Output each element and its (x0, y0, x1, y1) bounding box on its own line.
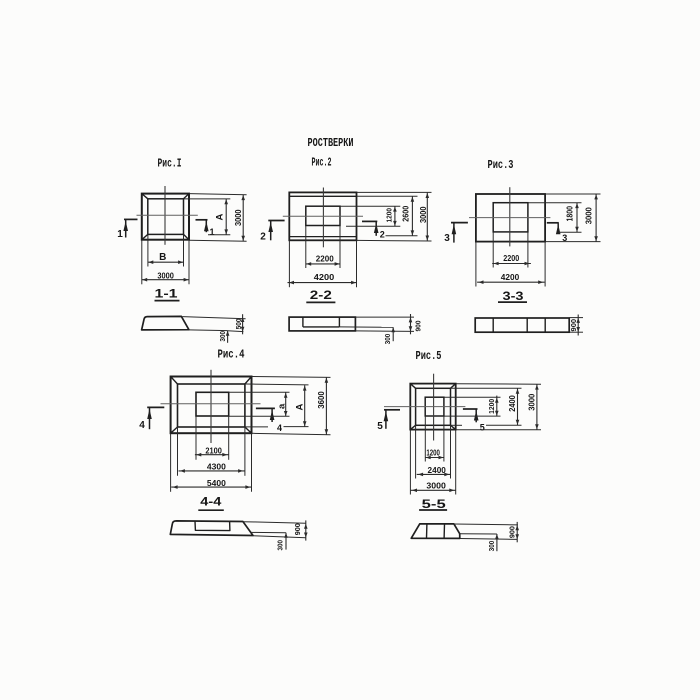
svg-text:5-5: 5-5 (422, 497, 446, 511)
svg-text:4: 4 (139, 420, 145, 431)
svg-text:a: a (277, 403, 288, 409)
svg-text:1800: 1800 (566, 206, 575, 222)
svg-text:1-1: 1-1 (155, 287, 178, 301)
svg-text:5400: 5400 (207, 478, 226, 488)
svg-text:2200: 2200 (503, 253, 519, 263)
svg-text:300: 300 (218, 331, 227, 342)
svg-text:5: 5 (480, 423, 485, 433)
svg-text:B: B (159, 252, 166, 263)
svg-text:3000: 3000 (419, 206, 428, 223)
svg-text:3000: 3000 (233, 209, 243, 226)
svg-text:2: 2 (260, 232, 266, 243)
svg-text:1200: 1200 (426, 449, 440, 458)
svg-text:РОСТВЕРКИ: РОСТВЕРКИ (308, 136, 354, 150)
svg-text:1200: 1200 (385, 208, 394, 223)
svg-text:300: 300 (276, 540, 285, 551)
svg-text:4: 4 (277, 423, 282, 433)
svg-text:3000: 3000 (584, 207, 593, 225)
svg-text:3-3: 3-3 (503, 289, 524, 303)
svg-text:2400: 2400 (428, 465, 447, 475)
svg-text:3000: 3000 (157, 270, 174, 280)
svg-text:2-2: 2-2 (310, 288, 332, 302)
svg-text:300: 300 (487, 541, 496, 552)
svg-text:900: 900 (507, 526, 516, 538)
svg-text:Рис.I: Рис.I (158, 157, 182, 171)
svg-text:2100: 2100 (205, 445, 222, 455)
svg-text:3000: 3000 (528, 393, 537, 411)
svg-text:2: 2 (380, 230, 385, 240)
svg-text:4-4: 4-4 (200, 495, 221, 509)
svg-text:2600: 2600 (402, 205, 411, 221)
svg-text:4300: 4300 (207, 461, 226, 471)
svg-text:300: 300 (383, 334, 392, 345)
svg-text:Рис.4: Рис.4 (218, 348, 245, 362)
svg-text:A: A (295, 403, 306, 410)
svg-text:1: 1 (209, 227, 214, 237)
svg-text:Рис.2: Рис.2 (312, 156, 332, 170)
svg-text:900: 900 (293, 523, 302, 535)
svg-text:2400: 2400 (508, 395, 517, 412)
svg-text:5: 5 (377, 421, 383, 432)
svg-text:1200: 1200 (487, 399, 496, 414)
svg-text:900: 900 (569, 319, 578, 332)
svg-text:A: A (215, 213, 226, 220)
svg-text:3600: 3600 (317, 391, 326, 409)
svg-text:4200: 4200 (501, 272, 520, 282)
svg-text:4200: 4200 (314, 272, 335, 282)
svg-text:1: 1 (117, 229, 123, 240)
svg-text:900: 900 (413, 321, 422, 332)
svg-text:2200: 2200 (316, 253, 334, 263)
svg-text:3000: 3000 (426, 481, 446, 491)
svg-text:Рис.5: Рис.5 (416, 349, 442, 363)
svg-text:3: 3 (444, 233, 450, 244)
svg-text:Рис.3: Рис.3 (488, 158, 514, 172)
svg-text:500: 500 (234, 318, 243, 329)
